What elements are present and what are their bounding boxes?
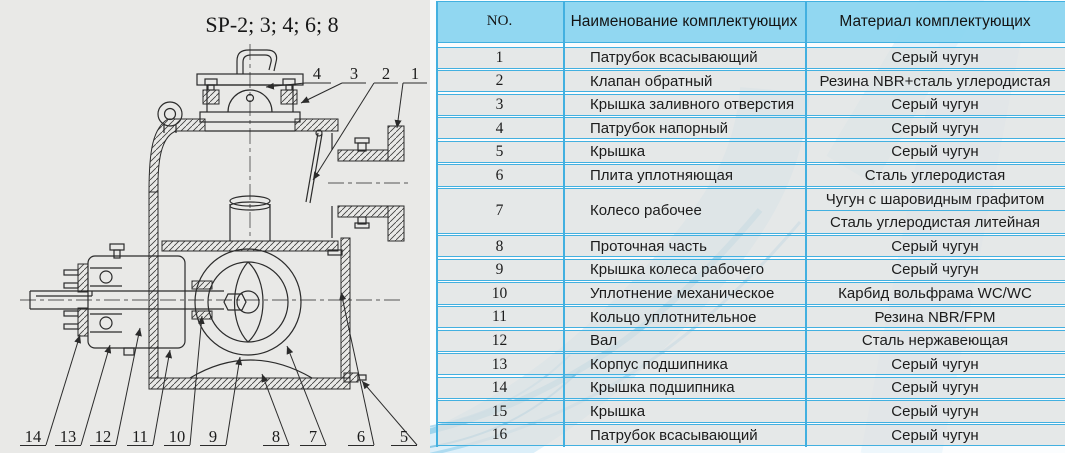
component-material: Серый чугун xyxy=(805,48,1065,68)
row-number: 5 xyxy=(436,142,563,162)
callout-number: 10 xyxy=(169,427,186,446)
component-name: Вал xyxy=(563,331,805,351)
table-row: 8Проточная частьСерый чугун xyxy=(436,235,1065,257)
table-row: 1Патрубок всасывающийСерый чугун xyxy=(436,47,1065,69)
column-divider xyxy=(563,1,565,447)
table-row: 6Плита уплотняющаяСталь углеродистая xyxy=(436,164,1065,186)
pump-cross-section-drawing: SP-2; 3; 4; 6; 8 xyxy=(0,0,430,453)
component-material: Серый чугун xyxy=(805,354,1065,374)
row-number: 9 xyxy=(436,260,563,280)
table-row: 14Крышка подшипникаСерый чугун xyxy=(436,377,1065,399)
row-number: 7 xyxy=(436,189,563,233)
table-row: 3Крышка заливного отверстияСерый чугун xyxy=(436,94,1065,116)
row-number: 12 xyxy=(436,331,563,351)
callout-number: 5 xyxy=(400,427,408,446)
component-material: Сталь нержавеющая xyxy=(805,331,1065,351)
row-number: 16 xyxy=(436,425,563,445)
table-row: 2Клапан обратныйРезина NBR+сталь углерод… xyxy=(436,70,1065,92)
header-no: NO. xyxy=(436,2,563,42)
component-name: Плита уплотняющая xyxy=(563,165,805,185)
component-material: Серый чугун xyxy=(805,401,1065,421)
callout-number: 7 xyxy=(309,427,317,446)
component-name: Корпус подшипника xyxy=(563,354,805,374)
callout-number: 4 xyxy=(313,64,321,83)
callout-number: 12 xyxy=(95,427,112,446)
table-row: 11Кольцо уплотнительноеРезина NBR/FPM xyxy=(436,306,1065,328)
row-number: 4 xyxy=(436,118,563,138)
component-material: Карбид вольфрама WC/WC xyxy=(805,283,1065,303)
table-body: 1Патрубок всасывающийСерый чугун2Клапан … xyxy=(436,47,1065,448)
callout-number: 1 xyxy=(411,64,419,83)
component-name: Крышка подшипника xyxy=(563,378,805,398)
table-row: 7Колесо рабочееЧугун с шаровидным графит… xyxy=(436,188,1065,234)
volute-outline xyxy=(195,249,301,355)
impeller-outline xyxy=(208,262,288,342)
row-number: 3 xyxy=(436,95,563,115)
callout-number: 13 xyxy=(60,427,77,446)
component-material: Серый чугун xyxy=(805,118,1065,138)
callout-number: 3 xyxy=(350,64,358,83)
callout-number: 14 xyxy=(25,427,42,446)
component-name: Крышка xyxy=(563,142,805,162)
component-material: Резина NBR/FPM xyxy=(805,307,1065,327)
table-row: 10Уплотнение механическоеКарбид вольфрам… xyxy=(436,282,1065,304)
table-row: 5КрышкаСерый чугун xyxy=(436,141,1065,163)
callout-number: 11 xyxy=(132,427,148,446)
catalog-page: SP-2; 3; 4; 6; 8 xyxy=(0,0,1065,453)
callout-leaders xyxy=(46,83,417,445)
callouts-bottom: 141312111098765 xyxy=(25,427,408,446)
component-material: Серый чугун xyxy=(805,425,1065,445)
callout-number: 9 xyxy=(209,427,217,446)
callout-number: 2 xyxy=(382,64,390,83)
check-valve-flap xyxy=(306,133,322,203)
component-material: Серый чугун xyxy=(805,378,1065,398)
component-material: Серый чугун xyxy=(805,142,1065,162)
row-number: 13 xyxy=(436,354,563,374)
component-material: Чугун с шаровидным графитомСталь углерод… xyxy=(805,189,1065,233)
component-name: Колесо рабочее xyxy=(563,189,805,233)
casing-walls xyxy=(78,90,404,389)
table-row: 16Патрубок всасывающийСерый чугун xyxy=(436,424,1065,446)
parts-table-panel: NO. Наименование комплектующих Материал … xyxy=(430,0,1065,453)
row-number: 15 xyxy=(436,401,563,421)
component-name: Патрубок всасывающий xyxy=(563,425,805,445)
header-component-name: Наименование комплектующих xyxy=(563,2,805,42)
component-material-line: Сталь углеродистая литейная xyxy=(805,210,1065,232)
parts-table: NO. Наименование комплектующих Материал … xyxy=(436,0,1065,453)
table-row: 12ВалСталь нержавеющая xyxy=(436,330,1065,352)
row-number: 11 xyxy=(436,307,563,327)
table-row: 15КрышкаСерый чугун xyxy=(436,400,1065,422)
component-name: Кольцо уплотнительное xyxy=(563,307,805,327)
component-name: Крышка колеса рабочего xyxy=(563,260,805,280)
callout-number: 8 xyxy=(272,427,280,446)
component-name: Крышка заливного отверстия xyxy=(563,95,805,115)
component-name: Проточная часть xyxy=(563,236,805,256)
component-material: Серый чугун xyxy=(805,260,1065,280)
ball-bearing xyxy=(100,317,112,329)
component-material-line: Чугун с шаровидным графитом xyxy=(805,189,1065,210)
column-divider xyxy=(805,1,807,447)
component-material: Серый чугун xyxy=(805,95,1065,115)
bearing-housing xyxy=(88,256,185,348)
table-left-border xyxy=(436,1,438,447)
component-name: Клапан обратный xyxy=(563,71,805,91)
component-material: Сталь углеродистая xyxy=(805,165,1065,185)
row-number: 6 xyxy=(436,165,563,185)
component-name: Крышка xyxy=(563,401,805,421)
header-material: Материал комплектующих xyxy=(805,2,1065,42)
component-name: Патрубок всасывающий xyxy=(563,48,805,68)
table-header-row: NO. Наименование комплектующих Материал … xyxy=(436,1,1065,43)
row-number: 10 xyxy=(436,283,563,303)
component-material: Серый чугун xyxy=(805,236,1065,256)
callout-number: 6 xyxy=(357,427,365,446)
row-number: 8 xyxy=(436,236,563,256)
table-row: 13Корпус подшипникаСерый чугун xyxy=(436,353,1065,375)
component-material: Резина NBR+сталь углеродистая xyxy=(805,71,1065,91)
drawing-title: SP-2; 3; 4; 6; 8 xyxy=(205,12,338,37)
component-name: Уплотнение механическое xyxy=(563,283,805,303)
row-number: 2 xyxy=(436,71,563,91)
callouts-top: 4321 xyxy=(313,64,419,83)
pump-drawing-panel: SP-2; 3; 4; 6; 8 xyxy=(0,0,430,453)
table-row: 9Крышка колеса рабочегоСерый чугун xyxy=(436,259,1065,281)
row-number: 14 xyxy=(436,378,563,398)
table-row: 4Патрубок напорныйСерый чугун xyxy=(436,117,1065,139)
ball-bearing xyxy=(100,271,112,283)
row-number: 1 xyxy=(436,48,563,68)
component-name: Патрубок напорный xyxy=(563,118,805,138)
